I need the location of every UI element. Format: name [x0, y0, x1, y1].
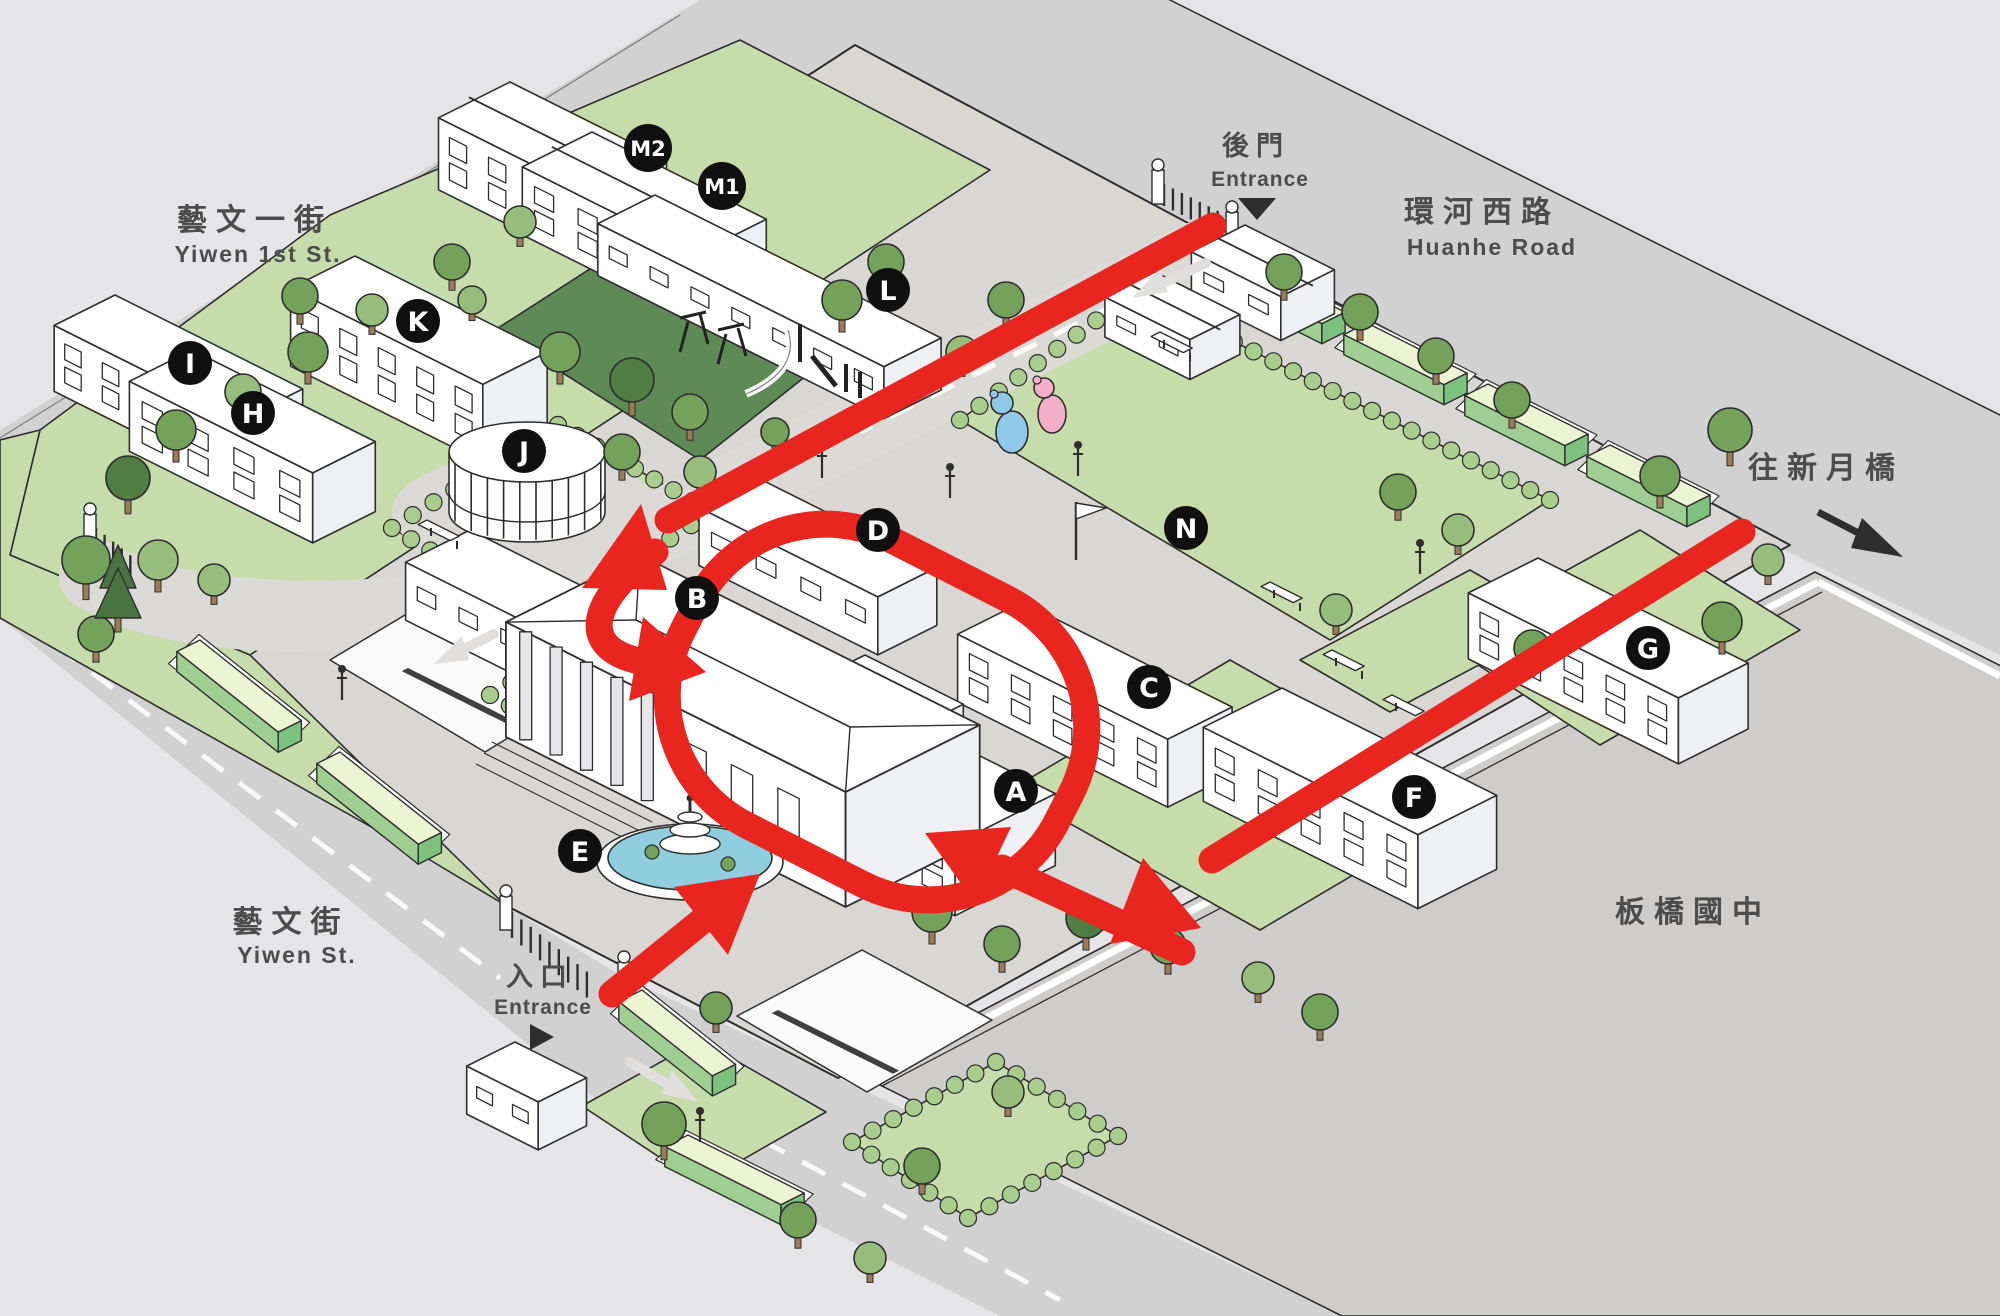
label-yiwen-1st-st-zh: 藝文一街 [177, 203, 333, 237]
badge-label: G [1637, 634, 1659, 665]
badge-label: E [571, 837, 589, 868]
label-back-gate-zh: 後門 [1222, 131, 1290, 161]
building-badge-f: F [1392, 775, 1436, 819]
map-canvas: A B C D E F G H I J K L M1 M2 N 藝文一街 Yiw… [0, 0, 2000, 1316]
badge-label: M1 [704, 175, 740, 199]
building-badge-e: E [558, 829, 602, 873]
building-badge-g: G [1626, 626, 1670, 670]
badge-label: I [185, 349, 195, 380]
campus-map: A B C D E F G H I J K L M1 M2 N 藝文一街 Yiw… [0, 0, 2000, 1316]
label-main-gate-en: Entrance [494, 996, 592, 1019]
building-badge-b: B [675, 576, 719, 620]
label-huanhe-road-zh: 環河西路 [1404, 196, 1560, 229]
building-badge-h: H [231, 391, 275, 435]
badge-label: F [1405, 783, 1423, 814]
badge-label: J [517, 437, 529, 468]
badge-label: C [1139, 673, 1159, 704]
building-badge-m2: M2 [624, 124, 672, 172]
label-yiwen-st-zh: 藝文街 [233, 905, 350, 939]
building-badge-j: J [502, 429, 546, 473]
building-badge-i: I [168, 341, 212, 385]
building-badge-m1: M1 [698, 162, 746, 210]
label-to-xinyue-bridge: 往新月橋 [1748, 452, 1904, 485]
label-huanhe-road-en: Huanhe Road [1407, 234, 1577, 260]
badge-label: H [242, 399, 265, 430]
badge-label: A [1006, 777, 1027, 808]
label-banqiao-junior-high: 板橋國中 [1615, 896, 1771, 929]
label-yiwen-st-en: Yiwen St. [237, 942, 356, 968]
building-badge-l: L [866, 268, 910, 312]
building-badge-d: D [856, 508, 900, 552]
building-badge-c: C [1127, 665, 1171, 709]
label-main-gate-zh: 入口 [506, 962, 574, 992]
badge-label: L [879, 276, 896, 307]
badge-label: M2 [630, 137, 666, 161]
label-yiwen-1st-st-en: Yiwen 1st St. [174, 241, 341, 267]
badge-label: B [687, 584, 708, 615]
building-badge-a: A [994, 769, 1038, 813]
label-back-gate-en: Entrance [1211, 168, 1309, 191]
map-scenery [0, 0, 2000, 1316]
badge-label: N [1175, 514, 1198, 545]
building-badge-k: K [396, 299, 440, 343]
badge-label: D [867, 516, 889, 547]
badge-label: K [408, 307, 430, 338]
building-badge-n: N [1164, 506, 1208, 550]
